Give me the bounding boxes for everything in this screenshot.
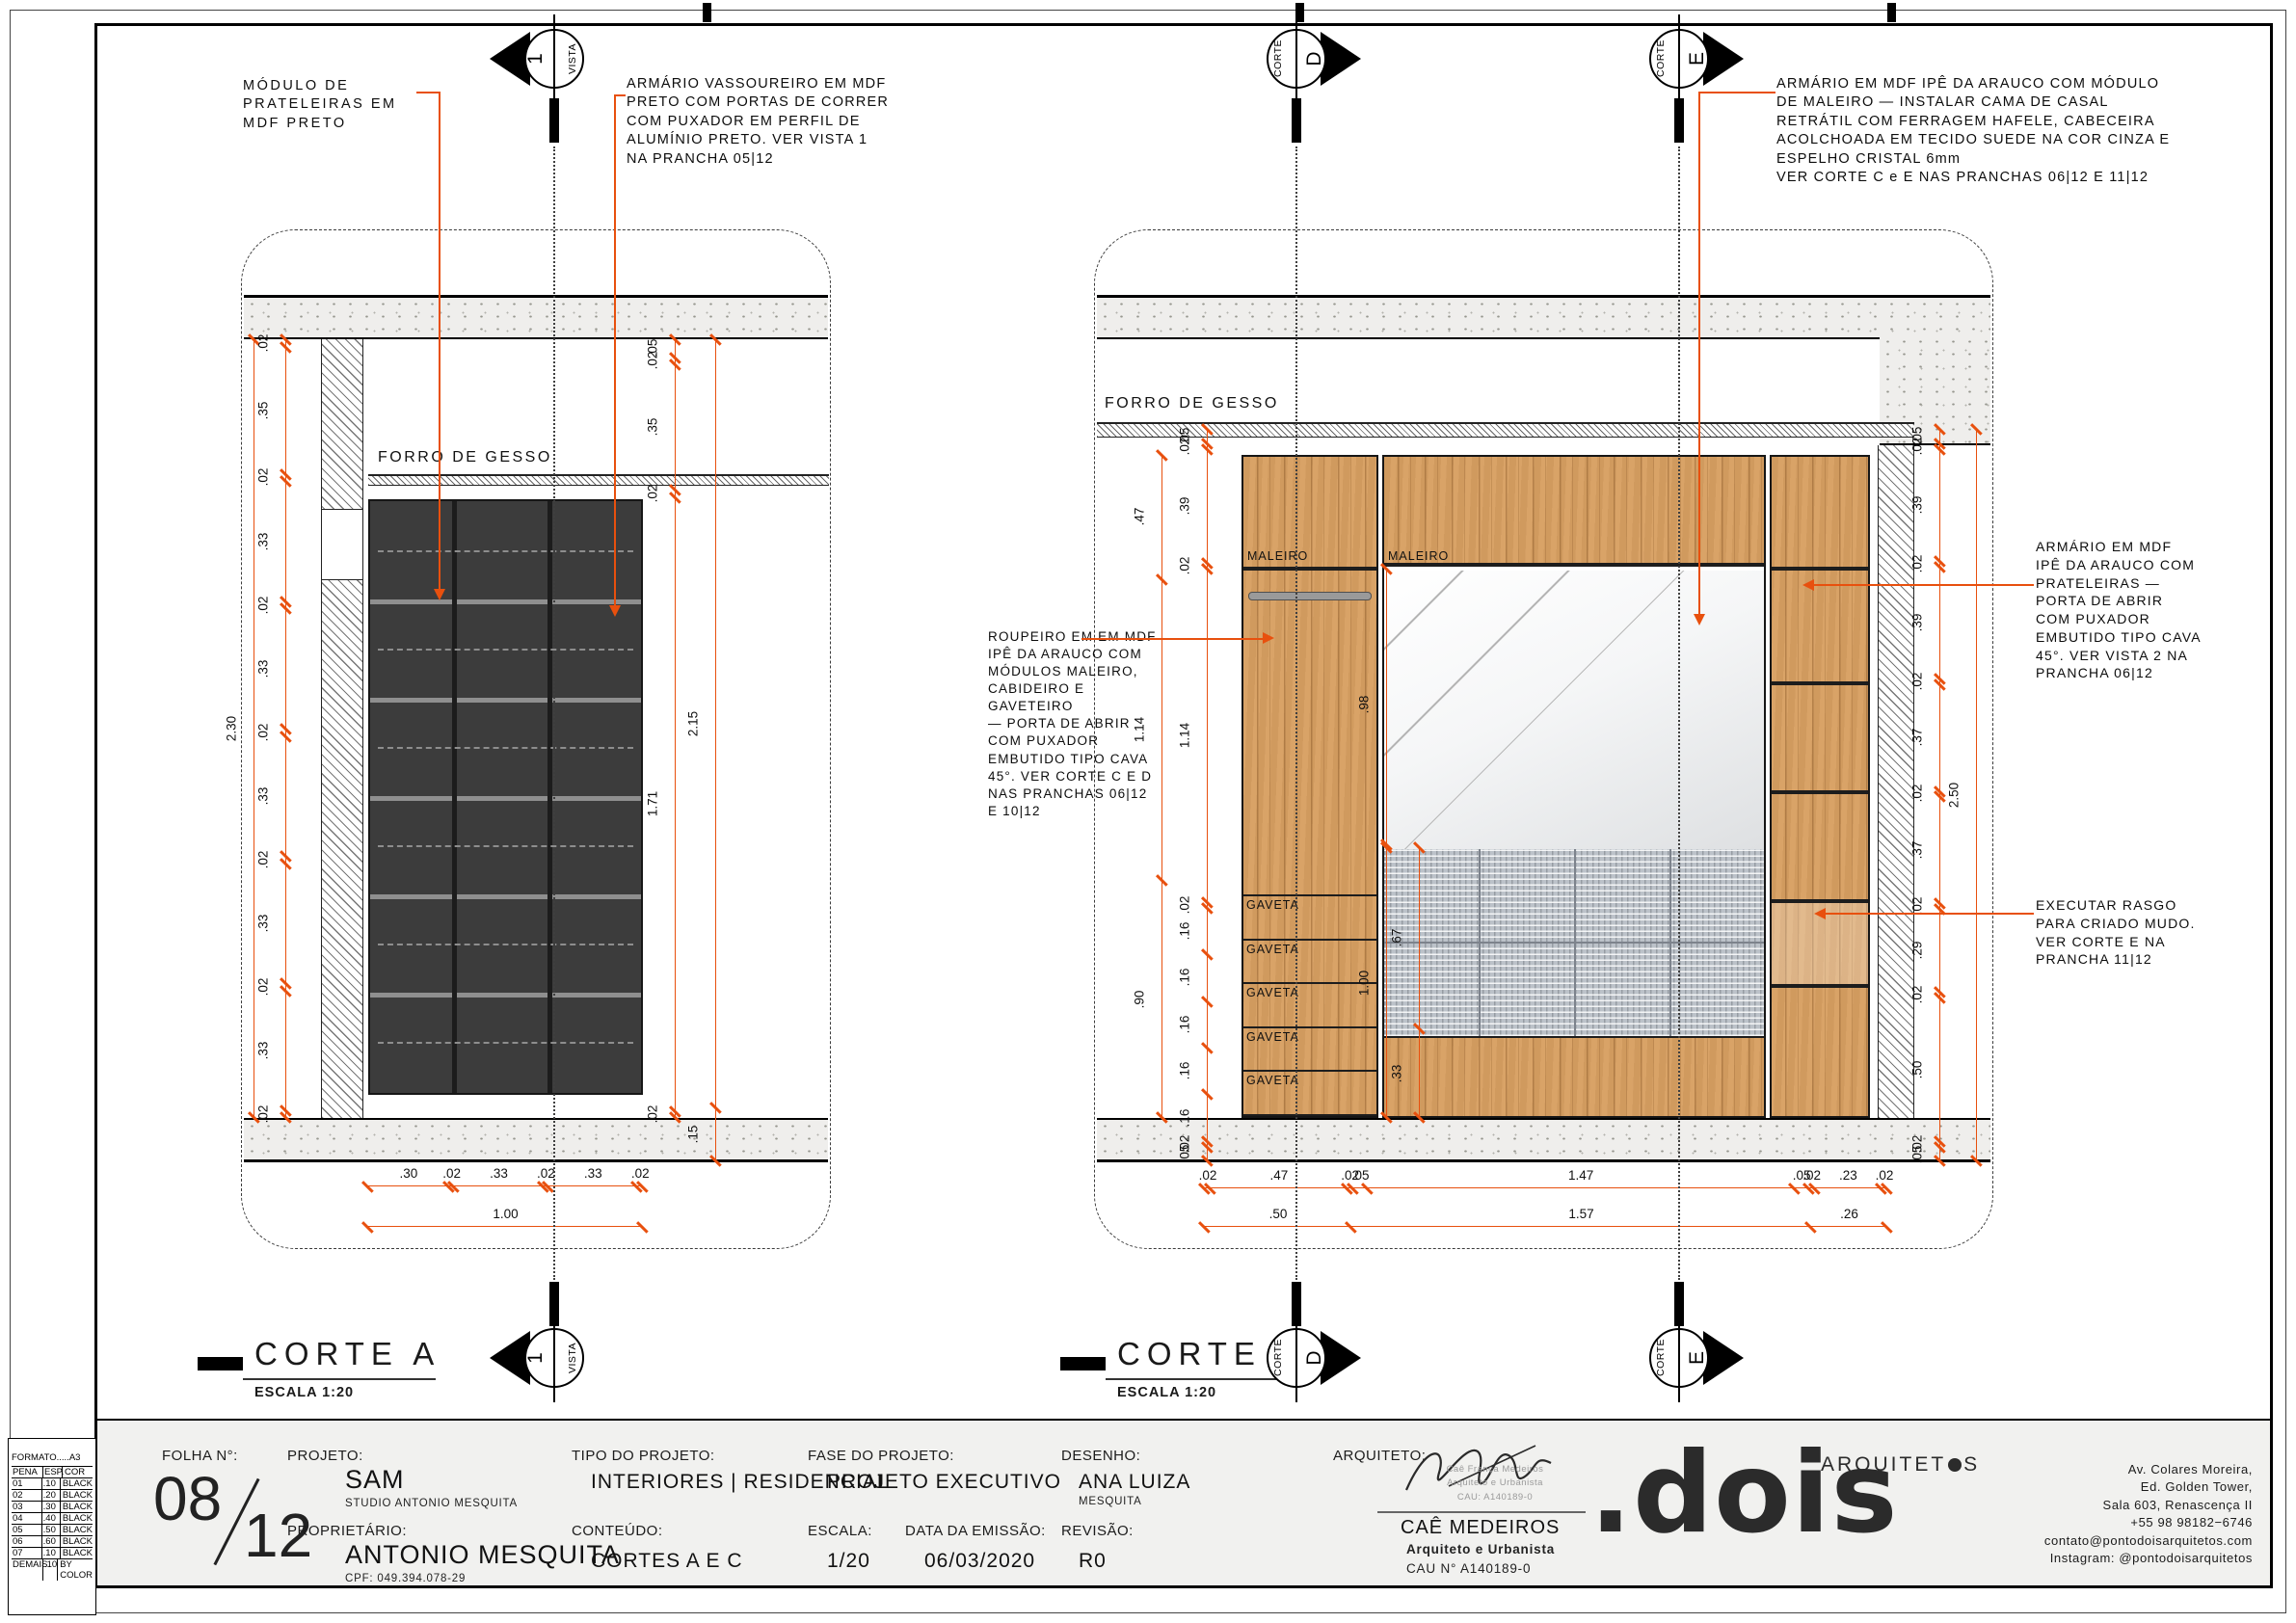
leader-arrow (1802, 579, 1814, 591)
dashed-line (378, 747, 633, 749)
dim-chain-c-right-inner: .05.02.39.02.39.02.37.02.37.02.29.02.50.… (1939, 429, 1940, 1161)
corte-a-gesso-band (368, 474, 829, 486)
escala-label: ESCALA: (808, 1523, 872, 1539)
pen-table-row: 05 .50 BLACK (12, 1524, 93, 1535)
leader-arrow (1263, 632, 1274, 644)
pen-table-row: 02 .20 BLACK (12, 1489, 93, 1501)
drawing-sheet: FORRO DE GESSO 2.30 .02.35.02.33.02.33.0… (0, 0, 2296, 1623)
mirror-reflection-line (1384, 571, 1501, 849)
corte-a-wall-block (321, 509, 363, 580)
stamp-line: Arquiteto e Urbanista (1408, 1477, 1582, 1490)
marker-number: 1 (524, 40, 547, 77)
marker-word: VISTA (567, 1340, 578, 1376)
pen-col-header: PENA (12, 1467, 43, 1477)
pen-col-header: ESP. (43, 1467, 63, 1477)
marker-letter: D (1303, 40, 1326, 77)
mirror-reflection-line (1384, 571, 1713, 849)
corte-c-floor-slab (1097, 1118, 1990, 1162)
marker-split (1295, 14, 1297, 103)
dim-chain-a-bottom: .30.02.33.02.33.02 (368, 1185, 643, 1186)
dim-chain-c-left-inner: .05.02.39.021.14.02.16.16.16.16.16.02.05 (1207, 429, 1208, 1161)
dashed-line (378, 1042, 633, 1044)
pen-table-row: 04 .40 BLACK (12, 1512, 93, 1524)
fase-value: PROJETO EXECUTIVO (827, 1471, 1061, 1494)
address-line: Ed. Golden Tower, (2002, 1478, 2253, 1496)
leader-line (1812, 584, 2034, 586)
annotation-modulo: MÓDULO DE PRATELEIRAS EM MDF PRETO (243, 77, 455, 133)
data-value: 06/03/2020 (924, 1550, 1035, 1573)
hanging-rod (1248, 592, 1372, 600)
conteudo-label: CONTEÚDO: (572, 1523, 663, 1539)
headboard-panel (1384, 849, 1764, 1036)
leader-line (1698, 92, 1700, 614)
logo-s-text: S (1963, 1453, 1980, 1477)
leader-line (1698, 92, 1775, 93)
dim-chain-c-headboard-total: 1.00 (1386, 847, 1387, 1118)
pen-col-header: COR (63, 1467, 93, 1477)
revisao-value: R0 (1079, 1550, 1107, 1573)
office-address: Av. Colares Moreira,Ed. Golden Tower,Sal… (2002, 1461, 2253, 1568)
marker-letter: E (1686, 1340, 1709, 1376)
dim-chain-a-right-outer: 2.15.15 (715, 339, 716, 1161)
corte-c-center-module: MALEIRO (1382, 455, 1766, 1118)
pen-table-row: 06 .60 BLACK (12, 1535, 93, 1547)
leader-arrow (1694, 614, 1705, 625)
dashed-line (378, 550, 633, 552)
corte-d-centerline (1295, 146, 1297, 1280)
dim-chain-c-mirror: .98 (1386, 569, 1387, 845)
pen-table: FORMATO.....A3 PENA ESP. COR 01 .10 BLAC… (8, 1438, 96, 1615)
pen-table-row: 03 .30 BLACK (12, 1501, 93, 1512)
shelf-line (370, 894, 641, 899)
corte-a-title: CORTE A (254, 1336, 441, 1372)
title-bar (1060, 1357, 1106, 1370)
leader-arrow (434, 589, 445, 600)
leader-line (614, 94, 616, 605)
dashed-line (378, 845, 633, 847)
fold-mark (1887, 3, 1896, 22)
leader-arrow (609, 605, 621, 617)
annotation-vassoureiro: ARMÁRIO VASSOUREIRO EM MDF PRETO COM POR… (627, 75, 925, 169)
dim-chain-a-right-inner: .05.02.35.021.71.02 (675, 339, 676, 1118)
marker-letter: E (1686, 40, 1709, 77)
maleiro-label: MALEIRO (1388, 549, 1449, 563)
proprietario-sub: CPF: 049.394.078-29 (345, 1573, 466, 1584)
shelf-line (1772, 567, 1868, 571)
architect-stamp: Caê França MedeirosArquiteto e Urbanista… (1408, 1463, 1582, 1504)
leader-line (439, 92, 441, 589)
title-block: FOLHA N°: 08 12 PROJETO: SAM STUDIO ANTO… (97, 1419, 2270, 1585)
annotation-rasgo: EXECUTAR RASGO PARA CRIADO MUDO. VER COR… (2036, 896, 2248, 969)
marker-word: CORTE (1272, 1340, 1284, 1376)
shelf-line (370, 993, 641, 998)
dashed-line (378, 944, 633, 945)
dim-chain-a-left: .02.35.02.33.02.33.02.33.02.33.02.33.02 (285, 339, 286, 1118)
annotation-roupeiro: ROUPEIRO EM EM MDF IPÊ DA ARAUCO COM MÓD… (988, 628, 1166, 820)
conteudo-value: CORTES A E C (591, 1550, 743, 1573)
marker-split (1295, 1314, 1297, 1402)
marker-split (1678, 1314, 1680, 1402)
corte-c-forro-label: FORRO DE GESSO (1105, 395, 1279, 412)
dashed-line (378, 649, 633, 651)
desenho-label: DESENHO: (1061, 1448, 1140, 1464)
corte-a-forro-label: FORRO DE GESSO (378, 449, 552, 466)
dim-chain-a-left-overall: 2.30 (254, 339, 254, 1118)
corte-a-floor-slab (244, 1118, 828, 1162)
fase-label: FASE DO PROJETO: (808, 1448, 954, 1464)
escala-value: 1/20 (827, 1550, 870, 1573)
dim-chain-a-bottom-total: 1.00 (368, 1226, 643, 1227)
stamp-line: CAU: A140189-0 (1408, 1491, 1582, 1504)
vista-1-marker-top: 1 VISTA (524, 29, 584, 89)
projeto-sub: STUDIO ANTONIO MESQUITA (345, 1498, 518, 1509)
section-arrow-icon (1321, 32, 1361, 86)
section-arrow-icon (1703, 1331, 1744, 1385)
corte-c-armario-right-module (1770, 455, 1870, 1118)
arquiteto-cargo: Arquiteto e Urbanista (1406, 1542, 1555, 1556)
shelf-divider (547, 501, 552, 1093)
tipo-label: TIPO DO PROJETO: (572, 1448, 715, 1464)
revisao-label: REVISÃO: (1061, 1523, 1134, 1539)
pen-table-rows: 01 .10 BLACK 02 .20 BLACK 03 .30 BLACK 0… (12, 1477, 93, 1581)
bed-front-panel (1384, 1036, 1764, 1116)
corte-e-centerline (1678, 146, 1680, 1280)
logo-dois: .dois (1589, 1428, 1899, 1558)
marker-word: CORTE (1272, 40, 1284, 77)
logo-dot-icon (1948, 1458, 1962, 1472)
arquiteto-cau: CAU N° A140189-0 (1406, 1561, 1531, 1576)
gaveta-label: GAVETA (1243, 896, 1376, 941)
marker-split (553, 14, 555, 103)
corte-e-marker-bottom: CORTE E (1649, 1328, 1709, 1388)
shelf-line (370, 698, 641, 703)
dim-chain-c-headboard-segs: .67.33 (1419, 847, 1420, 1118)
formato-label: FORMATO.....A3 (12, 1452, 93, 1463)
corte-a-wall (321, 339, 363, 1118)
signature-line (1377, 1511, 1586, 1513)
corte-e-marker-top: CORTE E (1649, 29, 1709, 89)
marker-letter: D (1303, 1340, 1326, 1376)
vista-1-marker-bottom: 1 VISTA (524, 1328, 584, 1388)
desenho-value: ANA LUIZA (1079, 1471, 1190, 1494)
data-label: DATA DA EMISSÃO: (905, 1523, 1046, 1539)
corte-c-ceiling-slab (1097, 295, 1990, 339)
marker-word: CORTE (1655, 1340, 1667, 1376)
section-arrow-icon (1321, 1331, 1361, 1385)
projeto-label: PROJETO: (287, 1448, 363, 1464)
address-line: +55 98 98182−6746 (2002, 1514, 2253, 1531)
arquiteto-nome: CAÊ MEDEIROS (1401, 1517, 1560, 1539)
leader-line (416, 92, 440, 93)
centerline-bar (549, 98, 559, 143)
leader-arrow (1814, 908, 1826, 919)
dim-chain-c-right-outer: 2.50 (1976, 429, 1977, 1161)
leader-line (1081, 638, 1265, 640)
address-line: Instagram: @pontodoisarquitetos (2002, 1550, 2253, 1567)
shelf-line (370, 599, 641, 604)
section-arrow-icon (1703, 32, 1744, 86)
leader-line (1824, 913, 2034, 915)
dim-chain-c-bottom-total: .501.57.26 (1205, 1226, 1887, 1227)
fold-mark (703, 3, 711, 22)
annotation-armario-prateleiras: ARMÁRIO EM MDF IPÊ DA ARAUCO COM PRATELE… (2036, 538, 2238, 682)
corte-c-wall (1878, 445, 1914, 1118)
headboard-seam (1384, 942, 1764, 944)
corte-a-shelving-unit (368, 499, 643, 1095)
pen-table-row: 07 .10 BLACK (12, 1547, 93, 1558)
drawer-stack: GAVETAGAVETAGAVETAGAVETAGAVETA (1243, 894, 1376, 1116)
gaveta-label: GAVETA (1243, 1028, 1376, 1073)
proprietario-label: PROPRIETÁRIO: (287, 1523, 407, 1539)
shelf-line (1772, 790, 1868, 794)
shelf-line (1772, 681, 1868, 685)
pen-table-row: DEMAIS .10 BY COLOR (12, 1558, 93, 1581)
pen-table-row: 01 .10 BLACK (12, 1477, 93, 1489)
proprietario-value: ANTONIO MESQUITA (345, 1540, 620, 1570)
shelf-line (370, 796, 641, 801)
corte-c-gesso-band (1097, 422, 1914, 438)
folha-label: FOLHA N°: (162, 1448, 238, 1464)
projeto-value: SAM (345, 1465, 405, 1495)
maleiro-shelf-line (1243, 567, 1376, 571)
centerline-bar (1674, 98, 1684, 143)
corte-d-marker-bottom: CORTE D (1267, 1328, 1326, 1388)
corte-c-escala: ESCALA 1:20 (1117, 1385, 1216, 1400)
pen-table-header: PENA ESP. COR (12, 1466, 93, 1477)
marker-word: VISTA (567, 40, 578, 77)
annotation-armario-maleiro: ARMÁRIO EM MDF IPÊ DA ARAUCO COM MÓDULO … (1776, 75, 2222, 188)
desenho-sub: MESQUITA (1079, 1496, 1142, 1507)
maleiro-label: MALEIRO (1247, 549, 1308, 563)
shelf-divider (452, 501, 457, 1093)
marker-word: CORTE (1655, 40, 1667, 77)
marker-split (553, 1314, 555, 1402)
folha-numerator: 08 (153, 1463, 222, 1534)
address-line: contato@pontodoisarquitetos.com (2002, 1532, 2253, 1550)
stamp-line: Caê França Medeiros (1408, 1463, 1582, 1477)
title-underline (243, 1378, 436, 1380)
dim-chain-c-bottom: .02.47.02.051.47.05.02.23.02 (1205, 1187, 1887, 1188)
vista-centerline (553, 146, 555, 1280)
address-line: Sala 603, Renascença II (2002, 1497, 2253, 1514)
mirror-panel (1384, 571, 1764, 849)
shelf-line (1772, 984, 1868, 988)
corte-a-ceiling-slab (244, 295, 828, 339)
address-line: Av. Colares Moreira, (2002, 1461, 2253, 1478)
corte-c-roupeiro-left-module: MALEIRO GAVETAGAVETAGAVETAGAVETAGAVETA (1241, 455, 1378, 1118)
corte-d-marker-top: CORTE D (1267, 29, 1326, 89)
marker-split (1678, 14, 1680, 103)
marker-number: 1 (524, 1340, 547, 1376)
centerline-bar (1292, 98, 1301, 143)
gaveta-label: GAVETA (1243, 1072, 1376, 1116)
title-bar (198, 1357, 243, 1370)
corte-a-escala: ESCALA 1:20 (254, 1385, 354, 1400)
